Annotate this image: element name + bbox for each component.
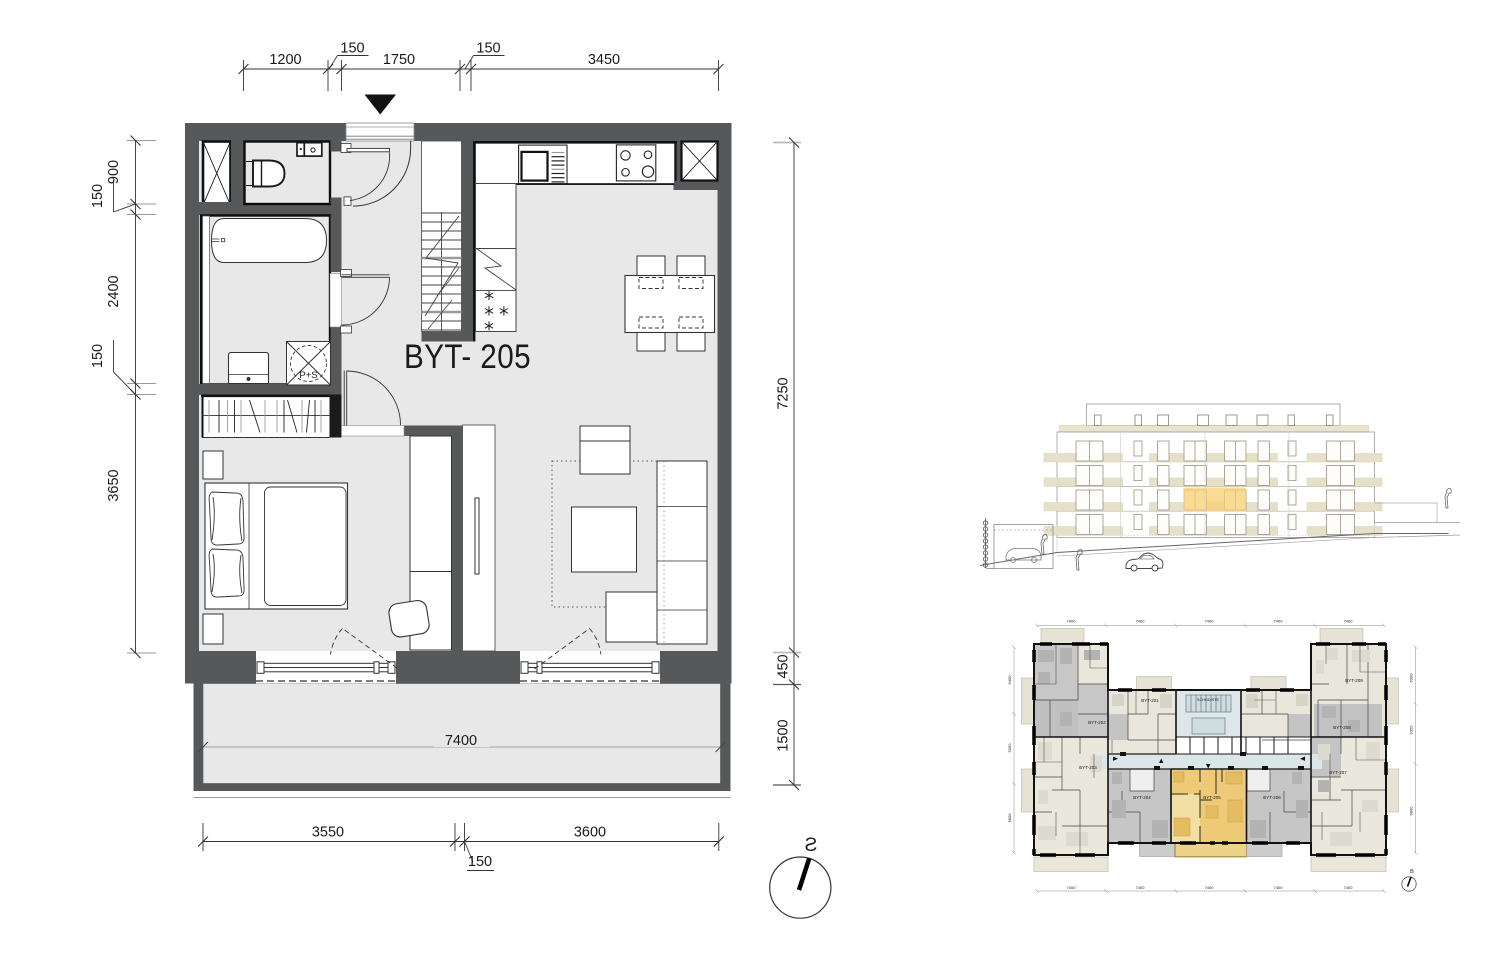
svg-text:6800: 6800: [1007, 813, 1012, 823]
svg-text:900: 900: [106, 160, 122, 184]
svg-text:7400: 7400: [1274, 885, 1284, 890]
svg-text:3600: 3600: [574, 825, 606, 841]
svg-text:3550: 3550: [312, 825, 344, 841]
svg-text:7400: 7400: [1067, 885, 1077, 890]
svg-text:6300: 6300: [1409, 673, 1414, 683]
svg-text:BYT-205: BYT-205: [1203, 795, 1221, 800]
svg-text:7400: 7400: [1205, 619, 1215, 624]
svg-text:BYT-203: BYT-203: [1079, 765, 1097, 770]
svg-text:7400: 7400: [1344, 619, 1354, 624]
svg-text:7400: 7400: [1205, 885, 1215, 890]
svg-text:6400: 6400: [1007, 675, 1012, 685]
svg-text:7400: 7400: [1067, 619, 1077, 624]
svg-text:150: 150: [340, 41, 364, 57]
svg-text:150: 150: [476, 41, 500, 57]
svg-text:7400: 7400: [1274, 619, 1284, 624]
svg-text:3650: 3650: [106, 469, 122, 501]
svg-text:1500: 1500: [776, 719, 792, 751]
svg-text:BYT-206: BYT-206: [1263, 795, 1281, 800]
svg-text:BYT-201: BYT-201: [1141, 698, 1159, 703]
svg-text:BYT- 205: BYT- 205: [404, 337, 531, 376]
svg-text:7400: 7400: [1344, 885, 1354, 890]
svg-text:BYT-209: BYT-209: [1345, 678, 1363, 683]
svg-text:3450: 3450: [588, 52, 620, 68]
svg-text:150: 150: [90, 344, 106, 368]
svg-text:7400: 7400: [445, 733, 477, 749]
svg-text:7250: 7250: [776, 377, 792, 409]
svg-text:150: 150: [90, 184, 106, 208]
svg-text:SCHODISTE: SCHODISTE: [1197, 698, 1220, 702]
svg-text:2400: 2400: [106, 275, 122, 307]
svg-text:BYT-208: BYT-208: [1333, 725, 1351, 730]
svg-text:450: 450: [776, 654, 792, 678]
svg-text:BYT-204: BYT-204: [1133, 795, 1151, 800]
svg-text:BYT-202: BYT-202: [1088, 720, 1106, 725]
svg-text:6050: 6050: [1007, 743, 1012, 753]
svg-text:7400: 7400: [1136, 619, 1146, 624]
svg-text:1750: 1750: [383, 52, 415, 68]
svg-text:S: S: [805, 835, 818, 856]
svg-text:150: 150: [468, 854, 492, 870]
svg-text:7400: 7400: [1136, 885, 1146, 890]
svg-text:BYT-207: BYT-207: [1329, 770, 1347, 775]
svg-text:6350: 6350: [1409, 725, 1414, 735]
svg-text:P+S: P+S: [299, 370, 317, 381]
svg-text:B: B: [1410, 869, 1414, 875]
svg-text:6800: 6800: [1409, 806, 1414, 816]
svg-text:1200: 1200: [269, 52, 301, 68]
